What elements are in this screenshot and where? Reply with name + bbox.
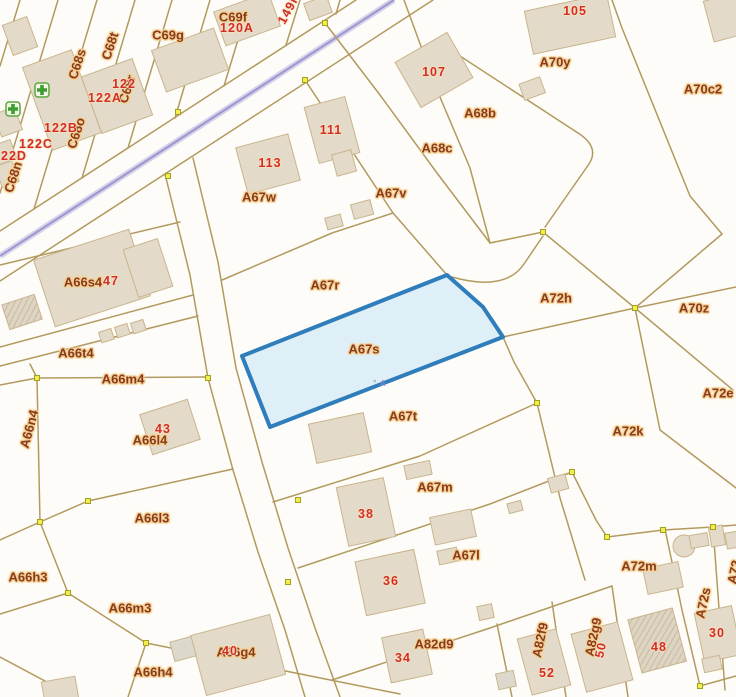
highlighted-parcel-a67s[interactable] bbox=[242, 275, 503, 427]
cadastral-map[interactable]: C69fC69gC68tC68sC68rC68oC68nA70yA70c2A68… bbox=[0, 0, 736, 697]
medical-cross-icon bbox=[35, 83, 49, 97]
medical-cross-icon bbox=[6, 102, 20, 116]
map-geometry bbox=[0, 0, 736, 697]
